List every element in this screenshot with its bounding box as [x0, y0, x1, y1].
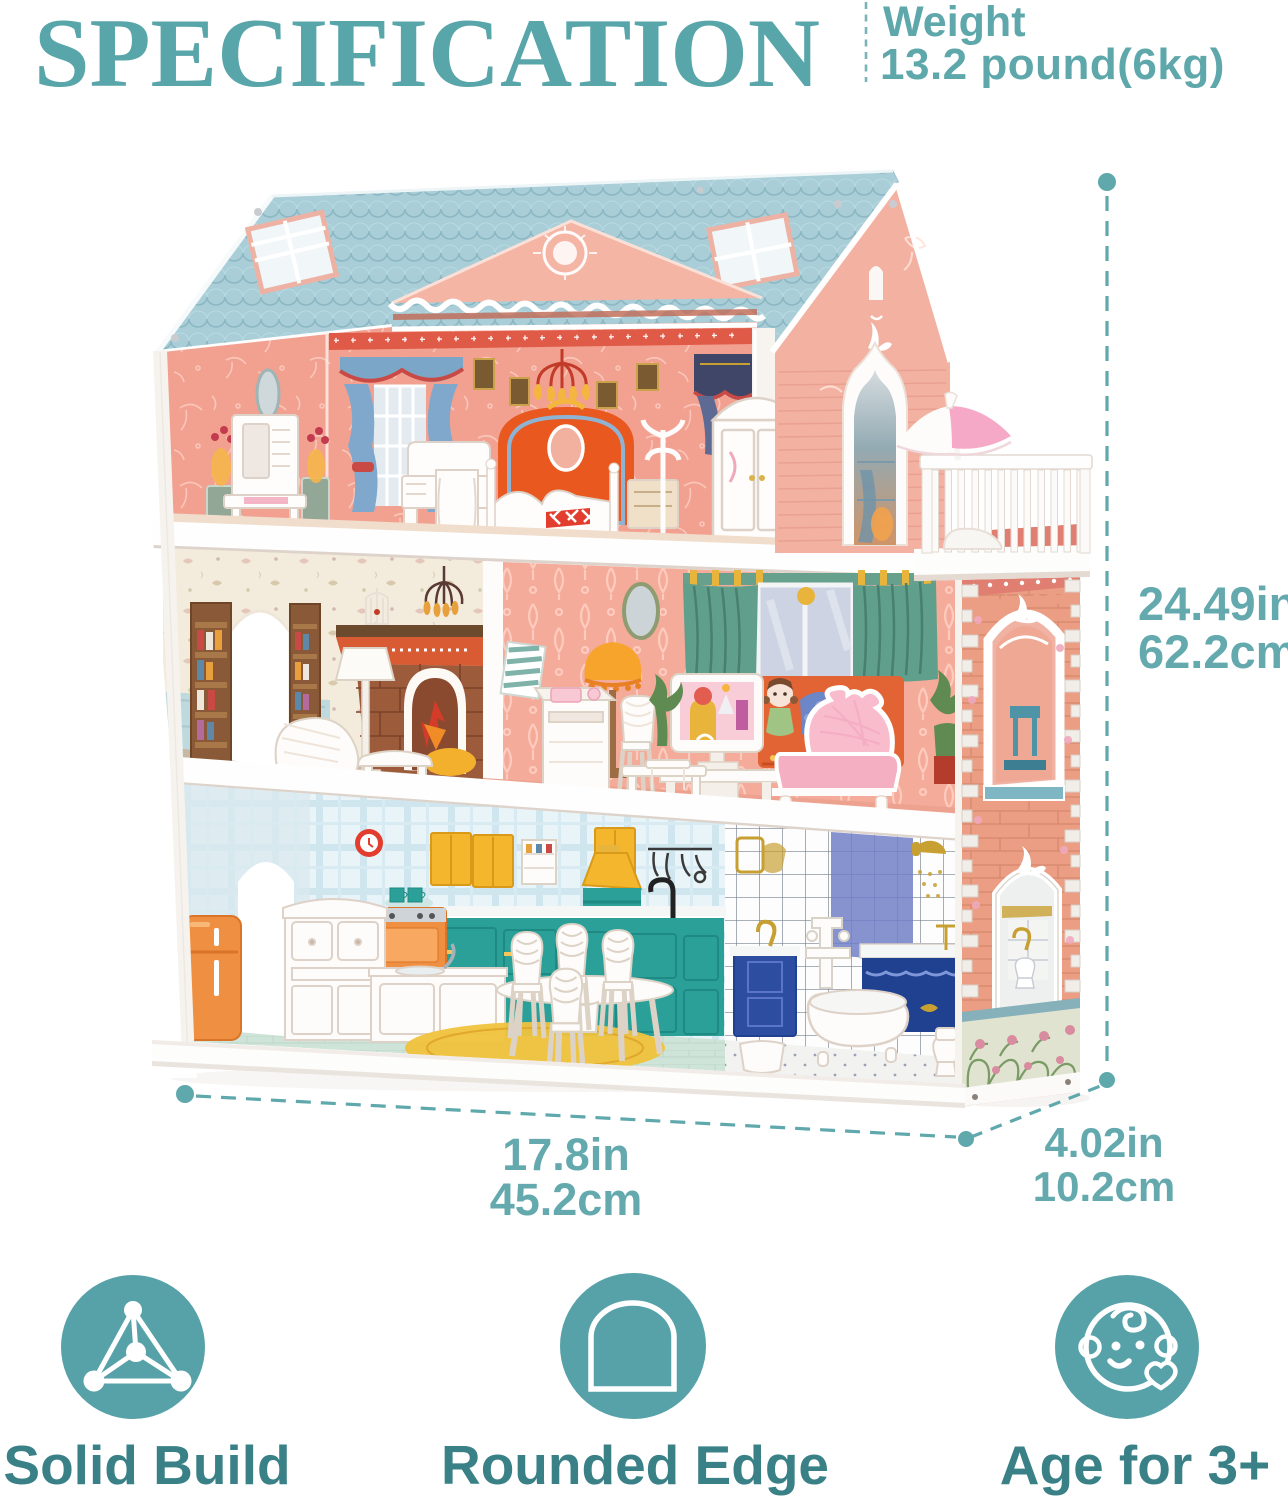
svg-text:4.02in: 4.02in — [1044, 1119, 1163, 1166]
svg-text:13.2 pound(6kg): 13.2 pound(6kg) — [880, 40, 1225, 89]
svg-text:Rounded Edge: Rounded Edge — [441, 1434, 829, 1496]
svg-text:24.49in: 24.49in — [1138, 577, 1288, 630]
svg-text:10.2cm: 10.2cm — [1033, 1163, 1175, 1210]
svg-text:SPECIFICATION: SPECIFICATION — [34, 0, 820, 108]
svg-text:62.2cm: 62.2cm — [1138, 625, 1288, 678]
svg-text:Solid Build: Solid Build — [3, 1434, 290, 1496]
svg-text:Age for 3+: Age for 3+ — [1000, 1434, 1271, 1496]
svg-text:17.8in: 17.8in — [502, 1129, 630, 1180]
svg-text:45.2cm: 45.2cm — [490, 1174, 643, 1225]
